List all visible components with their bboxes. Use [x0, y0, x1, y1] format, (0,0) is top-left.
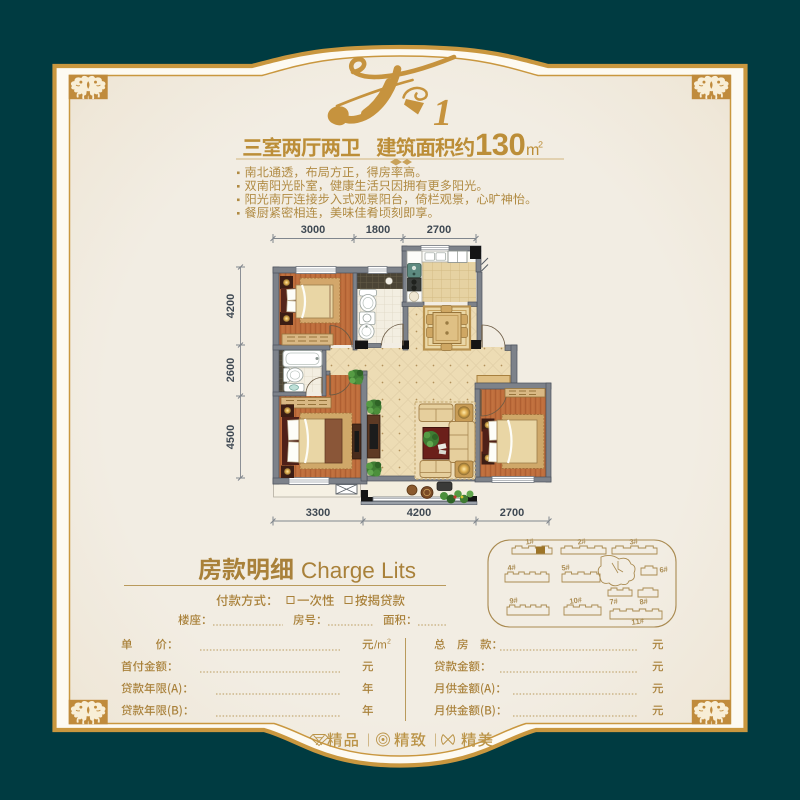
- svg-text:2600: 2600: [225, 358, 237, 382]
- svg-text:2700: 2700: [427, 224, 451, 236]
- svg-text:4200: 4200: [407, 507, 431, 519]
- svg-text:4200: 4200: [225, 294, 237, 318]
- svg-text:3000: 3000: [301, 224, 325, 236]
- svg-text:3300: 3300: [306, 507, 330, 519]
- svg-text:1800: 1800: [366, 224, 390, 236]
- svg-text:4500: 4500: [225, 425, 237, 449]
- svg-text:2700: 2700: [500, 507, 524, 519]
